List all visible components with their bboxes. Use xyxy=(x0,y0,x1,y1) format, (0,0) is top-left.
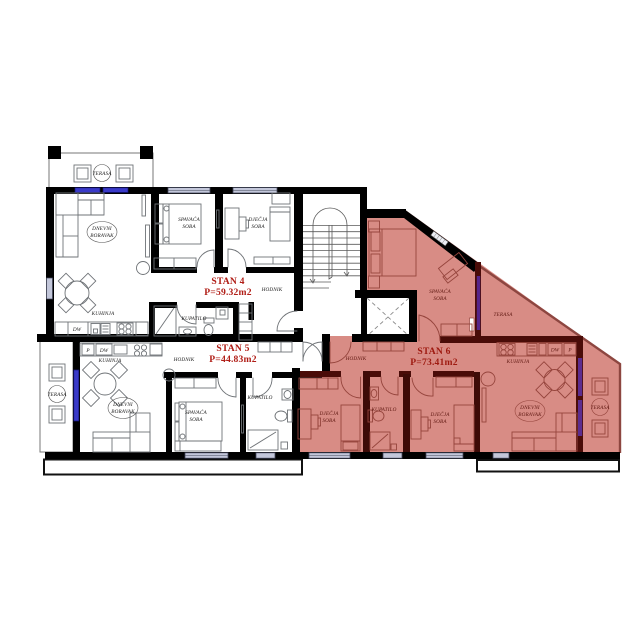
svg-text:TERASA: TERASA xyxy=(493,312,513,318)
svg-text:TERASA: TERASA xyxy=(47,392,67,398)
svg-text:P=44.83m2: P=44.83m2 xyxy=(209,354,257,365)
svg-text:DW: DW xyxy=(99,348,109,354)
svg-text:SPAVAĆA: SPAVAĆA xyxy=(429,287,451,295)
svg-text:DW: DW xyxy=(72,327,82,333)
svg-text:SOBA: SOBA xyxy=(189,417,203,423)
svg-text:P=73.41m2: P=73.41m2 xyxy=(410,357,458,368)
svg-text:KUPATILO: KUPATILO xyxy=(180,316,206,322)
svg-text:DJEČJA: DJEČJA xyxy=(247,215,268,223)
svg-text:P: P xyxy=(567,348,572,354)
svg-text:TERASA: TERASA xyxy=(590,405,610,411)
svg-text:KUHINJA: KUHINJA xyxy=(91,311,115,317)
svg-text:SPAVAĆA: SPAVAĆA xyxy=(178,215,200,223)
svg-text:HODNIK: HODNIK xyxy=(173,357,195,363)
svg-text:BORAVAK: BORAVAK xyxy=(111,409,135,415)
svg-text:STAN 4: STAN 4 xyxy=(211,276,244,287)
svg-text:SOBA: SOBA xyxy=(182,224,196,230)
svg-text:STAN 5: STAN 5 xyxy=(216,343,249,354)
svg-text:SOBA: SOBA xyxy=(251,224,265,230)
svg-text:DNEVNI: DNEVNI xyxy=(112,402,133,408)
svg-text:SOBA: SOBA xyxy=(322,418,336,424)
svg-text:SOBA: SOBA xyxy=(433,296,447,302)
svg-text:DJEČJA: DJEČJA xyxy=(318,409,339,417)
svg-text:SPAVAĆA: SPAVAĆA xyxy=(185,408,207,416)
svg-text:TERASA: TERASA xyxy=(92,171,112,177)
svg-text:DW: DW xyxy=(550,348,560,354)
svg-text:DJEČJA: DJEČJA xyxy=(429,410,450,418)
svg-text:KUPATILO: KUPATILO xyxy=(246,395,272,401)
svg-text:BORAVAK: BORAVAK xyxy=(90,233,114,239)
svg-text:KUHINJA: KUHINJA xyxy=(98,358,122,364)
svg-text:STAN 6: STAN 6 xyxy=(417,346,450,357)
svg-text:KUPATILO: KUPATILO xyxy=(370,407,396,413)
svg-text:P=59.32m2: P=59.32m2 xyxy=(204,287,252,298)
svg-text:DNEVNI: DNEVNI xyxy=(519,405,540,411)
svg-text:DNEVNI: DNEVNI xyxy=(91,226,112,232)
svg-text:BORAVAK: BORAVAK xyxy=(518,412,542,418)
svg-text:SOBA: SOBA xyxy=(433,419,447,425)
svg-text:HODNIK: HODNIK xyxy=(345,356,367,362)
svg-text:P: P xyxy=(85,348,90,354)
svg-text:HODNIK: HODNIK xyxy=(261,287,283,293)
svg-text:KUHINJA: KUHINJA xyxy=(506,359,530,365)
